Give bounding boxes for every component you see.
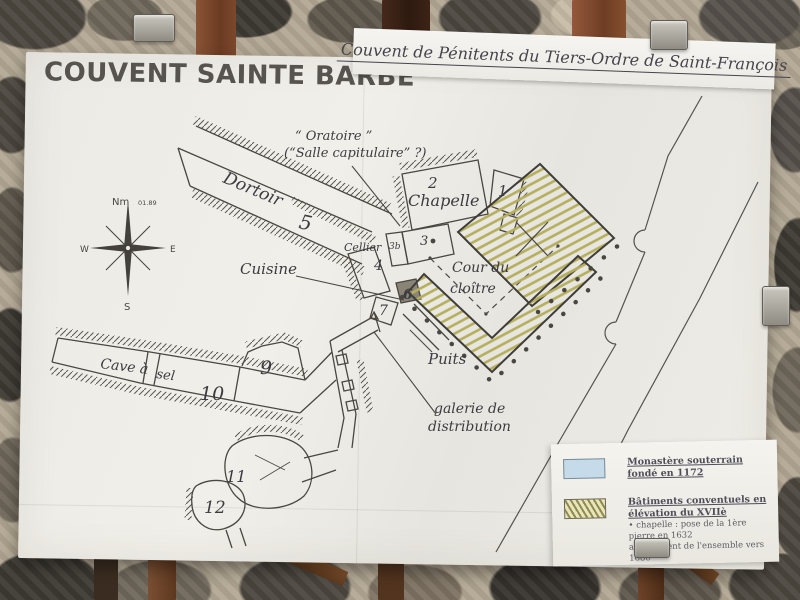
legend-label-underground: Monastère souterrain fondé en 1172 (627, 454, 769, 481)
legend-label-elevation: Bâtiments conventuels en élévation du XV… (628, 494, 770, 521)
board-subtitle: Couvent de Pénitents du Tiers-Ordre de S… (336, 39, 791, 78)
clip-bottom-right (634, 538, 670, 558)
easel-post-left (196, 0, 236, 62)
paper-seam-vertical (356, 57, 365, 563)
photo-stone-wall: COUVENT SAINTE BARBE Couvent de Pénitent… (0, 0, 800, 600)
legend-row-underground: Monastère souterrain fondé en 1172 (563, 454, 769, 482)
legend-swatch-underground (563, 458, 605, 479)
legend-swatch-elevation (564, 498, 606, 519)
clip-top-right (650, 20, 688, 50)
clip-top-left (133, 14, 175, 42)
clip-right-edge (762, 286, 790, 326)
